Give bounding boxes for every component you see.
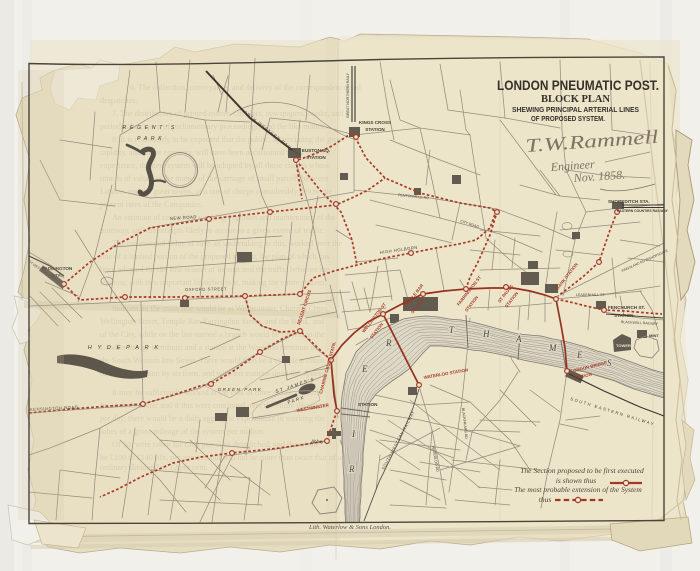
svg-text:Of 3d. were taken for each par: Of 3d. were taken for each parcel so des… [112,440,319,449]
svg-text:thus: thus [539,495,552,504]
svg-text:STATION: STATION [358,402,378,407]
svg-text:STATION: STATION [365,127,385,132]
svg-text:H Y D E P A R K: H Y D E P A R K [88,345,160,351]
svg-text:tubes of a gross mileage of th: tubes of a gross mileage of the system p… [100,427,265,436]
svg-text:be £100 to £140 life, per annu: be £100 to £140 life, per annum, and wil… [100,453,346,462]
svg-text:GREAT NORTHERN RAILY: GREAT NORTHERN RAILY [346,72,350,118]
svg-text:R E G E N T ' S: R E G E N T ' S [123,125,176,131]
svg-text:The Section proposed to be fir: The Section proposed to be first execute… [520,466,644,475]
svg-text:R: R [385,338,392,348]
svg-text:Abbey: Abbey [310,440,324,445]
svg-text:MINT: MINT [649,333,659,338]
svg-text:STATION: STATION [306,155,326,160]
svg-text:H: H [482,329,490,339]
svg-text:S: S [607,358,612,368]
svg-text:EASTERN COUNTIES RAILWAY: EASTERN COUNTIES RAILWAY [617,209,668,213]
svg-text:TOWER: TOWER [616,343,631,348]
svg-text:line of a limited portion of t: line of a limited portion of the propose… [100,252,330,261]
svg-text:per day, there would be a dail: per day, there would be a daily aggregat… [100,414,325,423]
svg-text:Stations on the main line woul: Stations on the main line would be at We… [112,304,329,313]
svg-text:EUSTON SQ.: EUSTON SQ. [302,148,330,153]
svg-text:R: R [348,464,355,474]
svg-text:M: M [548,343,557,353]
svg-text:6. The collection, conveyance,: 6. The collection, conveyance, and deliv… [130,83,361,92]
svg-text:P A R K: P A R K [137,136,163,142]
svg-text:OF PROPOSED SYSTEM.: OF PROPOSED SYSTEM. [531,116,605,123]
svg-text:STATION: STATION [614,313,634,318]
svg-text:BLOCK PLAN: BLOCK PLAN [541,94,610,105]
svg-text:E: E [576,350,583,360]
svg-text:FENCHURCH ST.: FENCHURCH ST. [608,305,645,310]
svg-text:the South Western line Street.: the South Western line Street. There wou… [100,356,324,365]
svg-text:GREEN PARK: GREEN PARK [218,387,263,392]
svg-text:is shown thus: is shown thus [556,476,597,485]
svg-text:7. The distribution of printed: 7. The distribution of printed matter, c… [112,109,343,118]
svg-text:KINGS CROSS: KINGS CROSS [359,120,391,125]
svg-text:despatches.: despatches. [100,96,138,105]
svg-text:Lith. Waterlow & Sons London.: Lith. Waterlow & Sons London. [308,524,391,531]
svg-text:OXFORD STREET: OXFORD STREET [185,286,227,292]
svg-text:SHOREDITCH STA.: SHOREDITCH STA. [608,199,650,204]
svg-text:A: A [515,334,522,344]
svg-text:SHEWING PRINCIPAL ARTERIAL LIN: SHEWING PRINCIPAL ARTERIAL LINES [512,107,639,114]
svg-text:The most probable extension of: The most probable extension of the Syste… [514,485,642,494]
svg-text:LONDON PNEUMATIC POST.: LONDON PNEUMATIC POST. [497,78,659,93]
svg-text:E: E [361,364,368,374]
svg-text:LEADENHALL ST.: LEADENHALL ST. [576,293,606,297]
svg-text:present rates of the Companies: present rates of the Companies. [100,200,203,209]
svg-text:time is of value, in the matte: time is of value, in the matter of the c… [100,174,329,183]
